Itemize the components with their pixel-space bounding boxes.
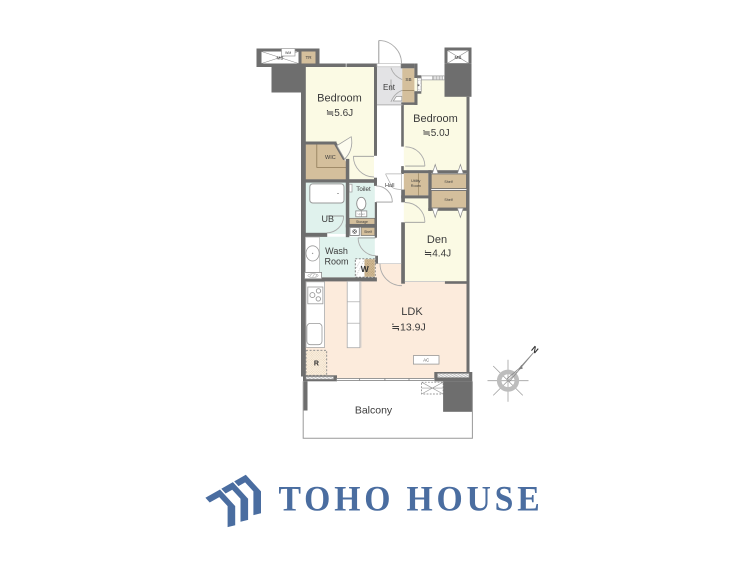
- svg-text:Toilet: Toilet: [356, 186, 371, 193]
- svg-text:N: N: [529, 344, 540, 356]
- svg-text:Shelf: Shelf: [364, 230, 372, 234]
- svg-text:AC: AC: [423, 358, 429, 363]
- svg-text:Room: Room: [324, 256, 348, 266]
- svg-text:Bedroom: Bedroom: [317, 93, 362, 105]
- svg-text:UB: UB: [322, 214, 335, 224]
- svg-text:LDK: LDK: [401, 306, 423, 318]
- svg-text:TOHO HOUSE: TOHO HOUSE: [279, 479, 544, 519]
- svg-text:SB: SB: [405, 77, 411, 82]
- svg-text:Storage: Storage: [356, 220, 368, 224]
- svg-text:≒13.9J: ≒13.9J: [391, 322, 426, 334]
- svg-text:R: R: [314, 361, 319, 368]
- svg-text:Shelf: Shelf: [444, 180, 452, 184]
- svg-text:Hall: Hall: [385, 183, 394, 189]
- svg-text:Balcony: Balcony: [355, 404, 393, 416]
- svg-text:Upper: Upper: [358, 212, 365, 216]
- svg-text:TR: TR: [305, 55, 312, 60]
- svg-text:Shelf: Shelf: [444, 198, 452, 202]
- svg-text:≒5.0J: ≒5.0J: [422, 128, 449, 139]
- svg-text:Den: Den: [427, 234, 447, 246]
- svg-text:Bedroom: Bedroom: [413, 113, 458, 125]
- svg-text:≒4.4J: ≒4.4J: [424, 249, 451, 260]
- svg-text:Ent: Ent: [383, 83, 396, 92]
- svg-text:Wash: Wash: [325, 246, 348, 256]
- svg-text:MB: MB: [277, 56, 284, 61]
- svg-text:Utility: Utility: [411, 179, 420, 183]
- svg-text:WM: WM: [285, 51, 291, 55]
- svg-text:W: W: [361, 264, 370, 274]
- svg-text:≒5.6J: ≒5.6J: [326, 108, 353, 119]
- svg-text:Room: Room: [411, 184, 421, 188]
- svg-text:MB: MB: [455, 55, 462, 60]
- svg-text:WIC: WIC: [325, 155, 336, 161]
